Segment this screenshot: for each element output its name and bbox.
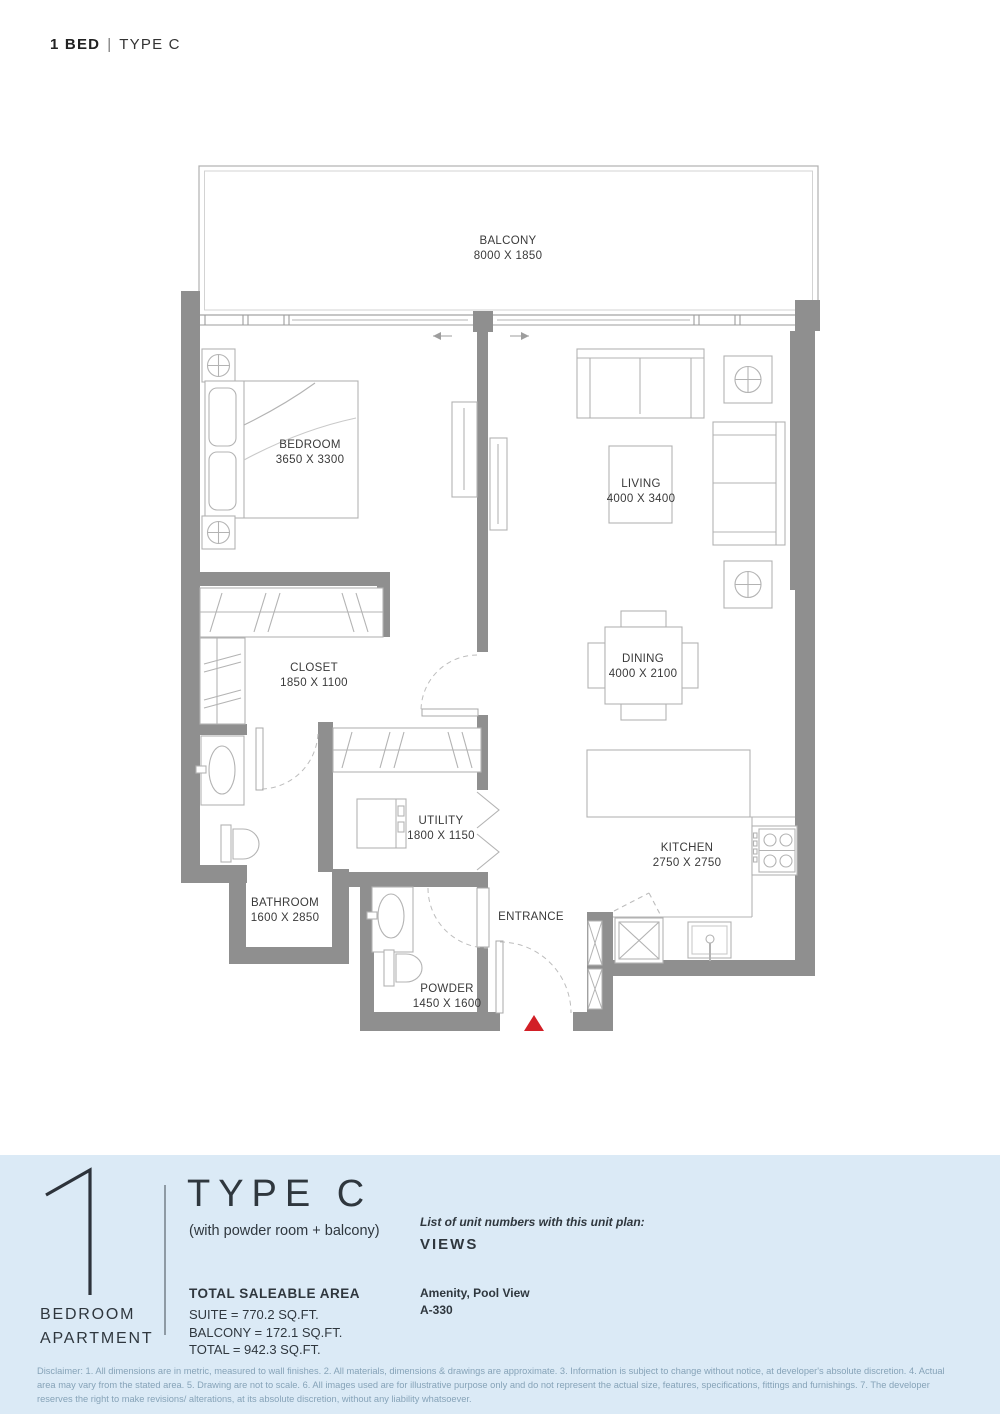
powder-faucet <box>367 912 377 919</box>
utility-dims: 1800 X 1150 <box>407 830 475 842</box>
area-line-balcony: BALCONY = 172.1 SQ.FT. <box>189 1324 342 1342</box>
living-label: LIVING <box>621 478 661 490</box>
footer-divider <box>164 1185 166 1335</box>
unit-number-numeral <box>36 1165 108 1302</box>
utility-label: UTILITY <box>419 815 464 827</box>
powder-toilet <box>384 950 422 986</box>
side-table-bottom <box>724 561 772 608</box>
closet-rack-left <box>200 638 245 724</box>
dining-chair-top <box>621 611 666 627</box>
sofa-horizontal <box>577 349 704 418</box>
floorplan-drawing: BALCONY 8000 X 1850 BEDROOM 3650 X 3300 … <box>0 0 1000 1150</box>
area-line-total: TOTAL = 942.3 SQ.FT. <box>189 1341 342 1359</box>
closet-rack-utility <box>333 728 481 772</box>
views-label: VIEWS <box>420 1236 478 1253</box>
kitchen-sink <box>688 922 731 961</box>
dining-table <box>605 627 682 704</box>
dining-dims: 4000 X 2100 <box>609 668 678 680</box>
unit-type-line1: BEDROOM <box>40 1303 153 1327</box>
kitchen-label: KITCHEN <box>661 842 714 854</box>
nightstand-bottom <box>202 516 235 549</box>
bathroom-toilet <box>221 825 259 862</box>
unit-type-line2: APARTMENT <box>40 1327 153 1351</box>
area-lines: SUITE = 770.2 SQ.FT. BALCONY = 172.1 SQ.… <box>189 1306 342 1359</box>
dining-chair-bottom <box>621 704 666 720</box>
fridge <box>615 918 663 963</box>
utility-bifold-door <box>477 792 499 870</box>
dining-chair-left <box>588 643 605 688</box>
side-table-top <box>724 356 772 403</box>
powder-door <box>428 888 489 948</box>
bedroom-door <box>421 655 478 716</box>
bathroom-door <box>256 728 318 790</box>
stove <box>752 826 797 875</box>
unit-type-label: BEDROOM APARTMENT <box>40 1303 153 1351</box>
nightstand-top <box>202 349 235 382</box>
kitchen-counter-top <box>587 750 750 817</box>
kitchen-dims: 2750 X 2750 <box>653 857 722 869</box>
sofa-vertical <box>713 422 785 545</box>
tv-panel-living <box>490 438 507 530</box>
type-subtitle: (with powder room + balcony) <box>189 1223 380 1239</box>
bathroom-dims: 1600 X 2850 <box>251 912 320 924</box>
unit-numbers: A-330 <box>420 1303 453 1317</box>
entrance-label: ENTRANCE <box>498 911 564 923</box>
living-furniture <box>577 349 785 608</box>
bathroom-fixtures <box>196 736 259 862</box>
powder-dims: 1450 X 1600 <box>413 998 482 1010</box>
bedroom-furniture <box>202 349 507 549</box>
balcony-dims: 8000 X 1850 <box>474 250 543 262</box>
dining-chair-right <box>681 643 698 688</box>
window-wall <box>199 315 818 340</box>
closet-rack-top <box>200 588 383 637</box>
dining-label: DINING <box>622 653 664 665</box>
entrance-door <box>496 941 571 1013</box>
bedroom-dims: 3650 X 3300 <box>276 454 345 466</box>
floorplan-page: 1 BED|TYPE C <box>0 0 1000 1414</box>
balcony-label: BALCONY <box>479 235 536 247</box>
area-line-suite: SUITE = 770.2 SQ.FT. <box>189 1306 342 1324</box>
washing-machine <box>357 799 406 848</box>
closet-dims: 1850 X 1100 <box>280 677 348 689</box>
amenity-line: Amenity, Pool View <box>420 1286 530 1300</box>
kitchen-bifold-door <box>614 893 661 916</box>
type-title: TYPE C <box>187 1173 372 1216</box>
bathroom-faucet <box>196 766 206 773</box>
living-dims: 4000 X 3400 <box>607 493 676 505</box>
closet-label: CLOSET <box>290 662 338 674</box>
area-heading: TOTAL SALEABLE AREA <box>189 1286 360 1301</box>
footer-band: BEDROOM APARTMENT TYPE C (with powder ro… <box>0 1155 1000 1414</box>
bathroom-label: BATHROOM <box>251 897 319 909</box>
bedroom-label: BEDROOM <box>279 439 341 451</box>
powder-fixtures <box>367 887 422 986</box>
wardrobe-panel-bedroom <box>452 402 477 497</box>
entrance-marker <box>524 1015 544 1031</box>
disclaimer-text: Disclaimer: 1. All dimensions are in met… <box>37 1365 963 1407</box>
powder-label: POWDER <box>420 983 474 995</box>
entrance-cabinets <box>588 921 602 1009</box>
dining-furniture <box>588 611 698 720</box>
units-list-label: List of unit numbers with this unit plan… <box>420 1215 645 1229</box>
